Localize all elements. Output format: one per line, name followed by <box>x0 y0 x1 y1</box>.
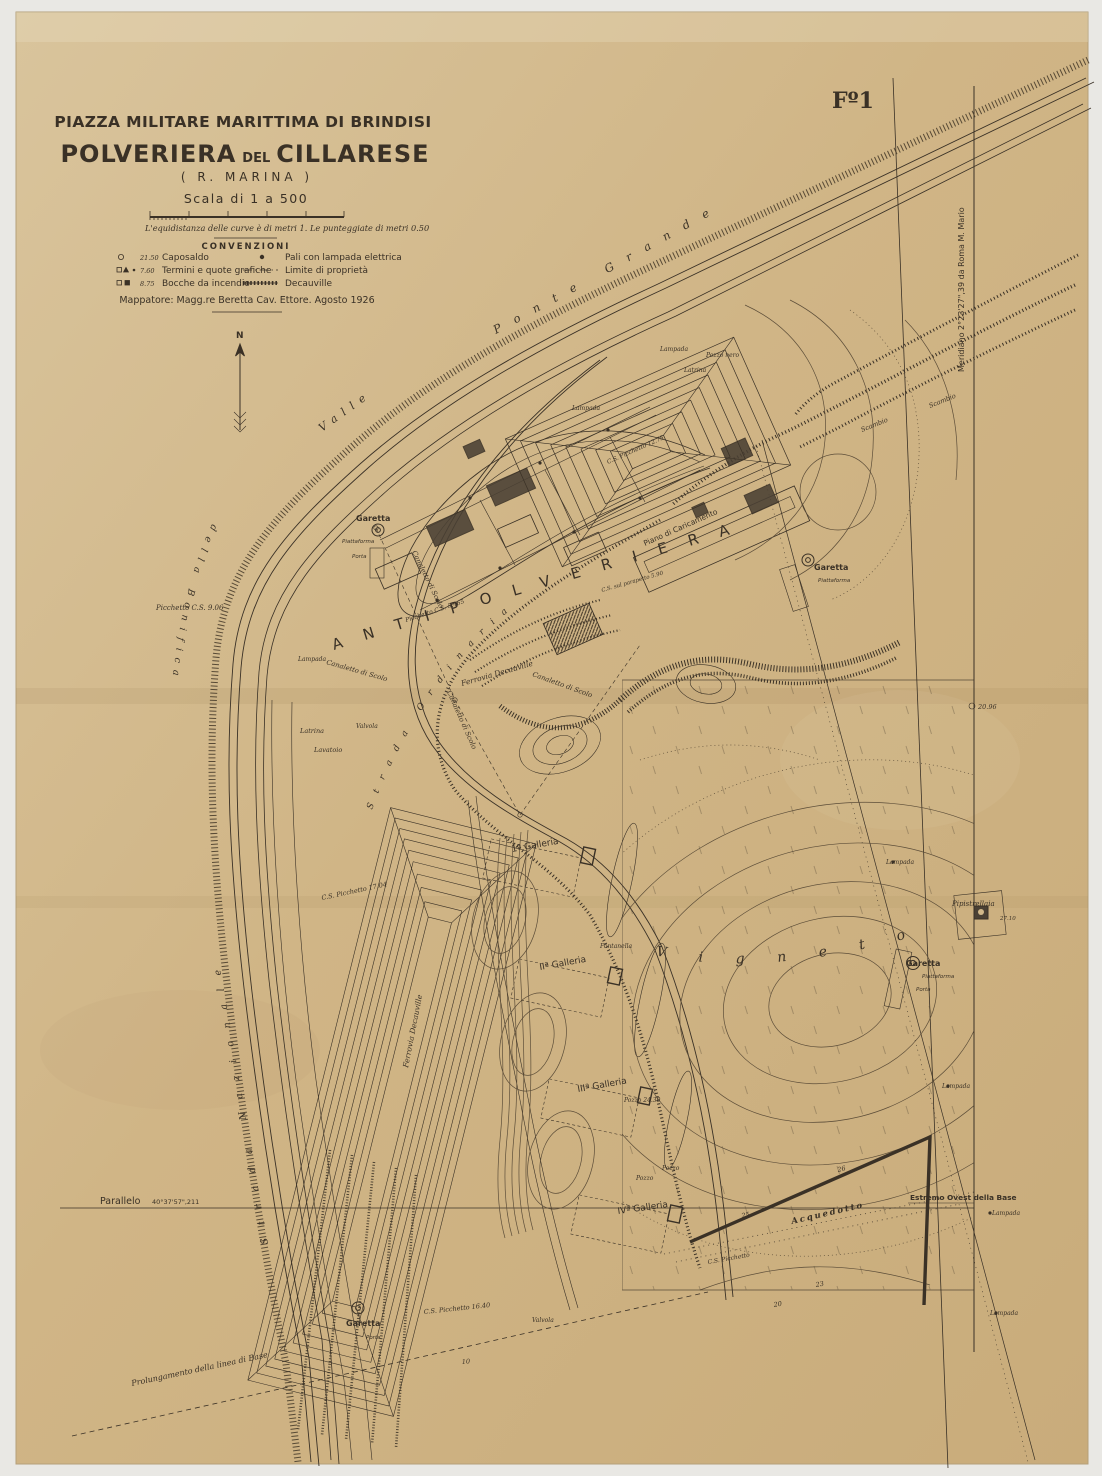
lampada-label: Lampada <box>571 405 601 412</box>
legend-value: 7.60 <box>140 267 154 275</box>
valvola-label: Valvola <box>532 1317 554 1324</box>
legend-label: Decauville <box>285 279 332 289</box>
base-west-point: Estremo Ovest della Base <box>908 1193 1017 1203</box>
contour-value: 23 <box>814 1280 825 1289</box>
piattaforma-label: Piattaforma <box>342 539 375 545</box>
estremo-ovest-label: Estremo Ovest della Base <box>910 1193 1017 1202</box>
pozzo-label: Pozzo 24.30 <box>623 1097 661 1104</box>
contour-value: 10 <box>461 1357 470 1366</box>
legend-label: Pali con lampada elettrica <box>285 253 402 263</box>
legend-label: Caposaldo <box>162 253 209 263</box>
piattaforma-label: Piattaforma <box>922 974 955 980</box>
piattaforma-label: Piattaforma <box>818 578 851 584</box>
meridian-label: Meridiano 2°23'27",39 da Roma M. Mario <box>957 207 966 372</box>
porta-label: Porta <box>352 554 367 560</box>
scanned-map-page: PIAZZA MILITARE MARITTIMA DI BRINDISI PO… <box>0 0 1102 1476</box>
legend-label: Limite di proprietà <box>285 266 368 276</box>
pipistrellaia-label: Pipistrellaia <box>951 900 995 908</box>
equidistance-note: L'equidistanza delle curve è di metri 1.… <box>144 223 429 233</box>
garetta-label: Garetta <box>356 514 390 523</box>
north-label: N <box>236 331 244 341</box>
legend-value: 8.75 <box>140 280 154 288</box>
lampada-label: Lampada <box>297 656 327 663</box>
lampada-label: Lampada <box>885 859 915 866</box>
lavatoio-label: Lavatoio <box>313 746 342 754</box>
map-canvas: PIAZZA MILITARE MARITTIMA DI BRINDISI PO… <box>0 0 1102 1476</box>
scale-text: Scala di 1 a 500 <box>184 191 308 206</box>
garetta-label: Garetta <box>814 563 848 572</box>
parallel-value: 40°37'57",211 <box>152 1198 199 1206</box>
legend-label: Bocche da incendio <box>162 279 250 289</box>
lampada-label: Lampada <box>941 1083 971 1090</box>
fontanella-label: Fontanella <box>599 943 633 950</box>
lampada-label: Lampada <box>989 1310 1019 1317</box>
contour-value: 20 <box>772 1300 783 1309</box>
map-subtitle: ( R. MARINA ) <box>181 170 313 184</box>
pozzo-nero-label: Pozzo nero <box>705 352 740 359</box>
lampada-label: Lampada <box>991 1210 1021 1217</box>
valvola-label: Valvola <box>356 723 378 730</box>
mapper-credit: Mappatore: Magg.re Beretta Cav. Ettore. … <box>119 295 374 306</box>
garetta-label: Garetta <box>906 959 940 968</box>
map-region-title: PIAZZA MILITARE MARITTIMA DI BRINDISI <box>54 113 431 131</box>
legend-value: 21.50 <box>139 254 159 262</box>
parallel-label: Parallelo <box>100 1196 141 1207</box>
porta-label: Porta <box>916 987 931 993</box>
garetta-label: Garetta <box>346 1319 380 1328</box>
sheet-number: Fº1 <box>832 88 874 114</box>
pozzo-label: Pozzo <box>635 1175 654 1182</box>
latrina-label: Latrina <box>299 727 324 735</box>
porta-label: Porta <box>366 1335 381 1341</box>
palo-dot-icon <box>260 255 264 259</box>
quota-label: 27.10 <box>999 916 1016 922</box>
legend-heading: CONVENZIONI <box>202 242 291 252</box>
quota-label: 20.96 <box>977 703 997 711</box>
picchetto-label: Picchetto C.S. 9.06 <box>155 604 224 612</box>
latrina-label: Latrina <box>683 367 707 374</box>
legend-label: Termini e quote grafiche <box>161 266 272 276</box>
lampada-label: Lampada <box>659 346 689 353</box>
pozzo-label: Pozzo <box>661 1165 680 1172</box>
